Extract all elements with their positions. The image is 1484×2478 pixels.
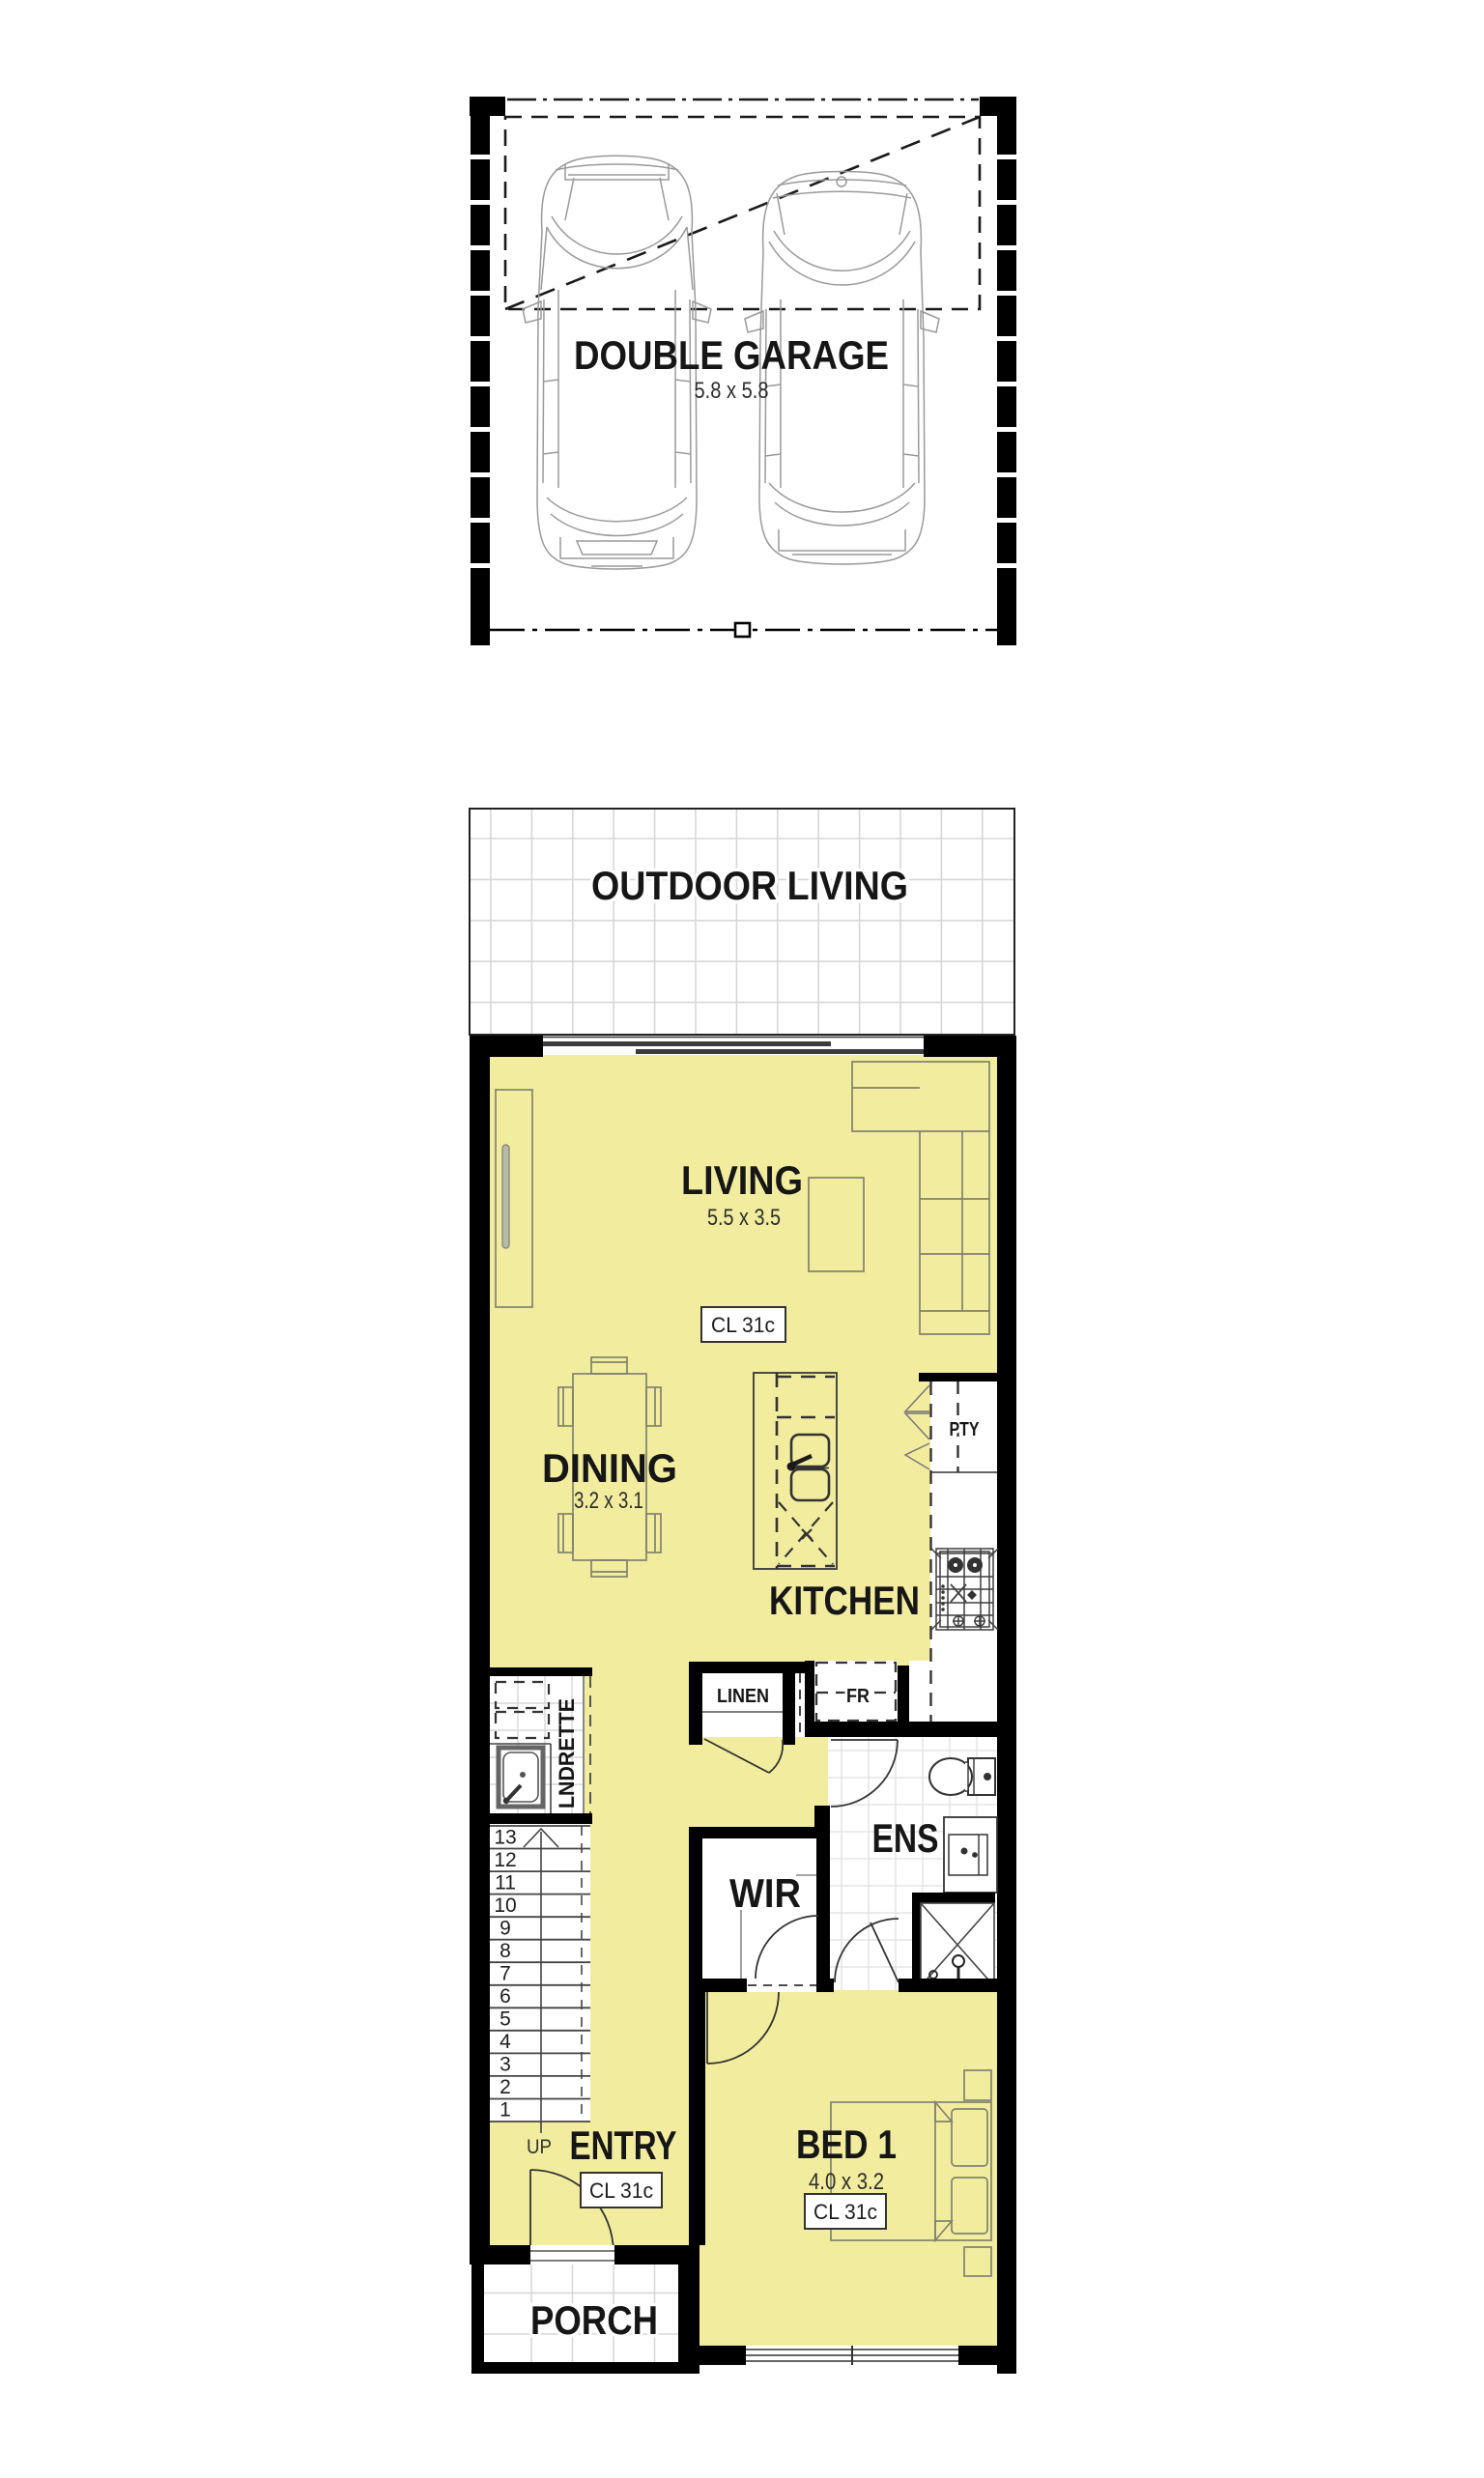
svg-text:2: 2 xyxy=(499,2076,511,2098)
svg-text:LIVING: LIVING xyxy=(681,1157,803,1203)
svg-text:3: 3 xyxy=(499,2054,511,2076)
svg-text:LINEN: LINEN xyxy=(717,1686,769,1707)
svg-text:BED 1: BED 1 xyxy=(796,2122,897,2167)
svg-text:3.2 x 3.1: 3.2 x 3.1 xyxy=(574,1488,643,1514)
svg-text:CL 31c: CL 31c xyxy=(711,1313,775,1337)
svg-text:13: 13 xyxy=(494,1826,516,1848)
svg-text:4: 4 xyxy=(499,2031,511,2053)
svg-text:CL 31c: CL 31c xyxy=(813,2200,877,2224)
svg-text:1: 1 xyxy=(499,2099,511,2122)
svg-text:8: 8 xyxy=(499,1940,511,1962)
svg-text:UP: UP xyxy=(527,2136,552,2158)
svg-text:5: 5 xyxy=(499,2008,511,2031)
svg-text:PTY: PTY xyxy=(950,1419,981,1440)
svg-text:DOUBLE GARAGE: DOUBLE GARAGE xyxy=(574,332,889,378)
svg-text:ENS: ENS xyxy=(872,1815,939,1861)
svg-text:9: 9 xyxy=(499,1917,511,1939)
svg-text:WIR: WIR xyxy=(729,1870,801,1916)
svg-text:PORCH: PORCH xyxy=(530,2297,658,2343)
svg-text:DINING: DINING xyxy=(542,1445,677,1491)
svg-text:ENTRY: ENTRY xyxy=(570,2122,677,2168)
svg-text:4.0 x 3.2: 4.0 x 3.2 xyxy=(809,2169,884,2195)
svg-text:10: 10 xyxy=(494,1894,516,1917)
svg-text:7: 7 xyxy=(499,1963,511,1985)
svg-text:FR: FR xyxy=(846,1686,870,1707)
svg-text:LNDRETTE: LNDRETTE xyxy=(555,1698,579,1809)
svg-text:11: 11 xyxy=(495,1871,516,1894)
svg-text:12: 12 xyxy=(494,1849,516,1871)
svg-text:5.8 x 5.8: 5.8 x 5.8 xyxy=(695,378,769,404)
svg-text:6: 6 xyxy=(499,1985,511,2008)
svg-text:5.5 x 3.5: 5.5 x 3.5 xyxy=(707,1205,781,1231)
svg-text:KITCHEN: KITCHEN xyxy=(769,1578,920,1623)
svg-text:OUTDOOR LIVING: OUTDOOR LIVING xyxy=(591,863,908,908)
svg-text:CL 31c: CL 31c xyxy=(589,2179,653,2203)
